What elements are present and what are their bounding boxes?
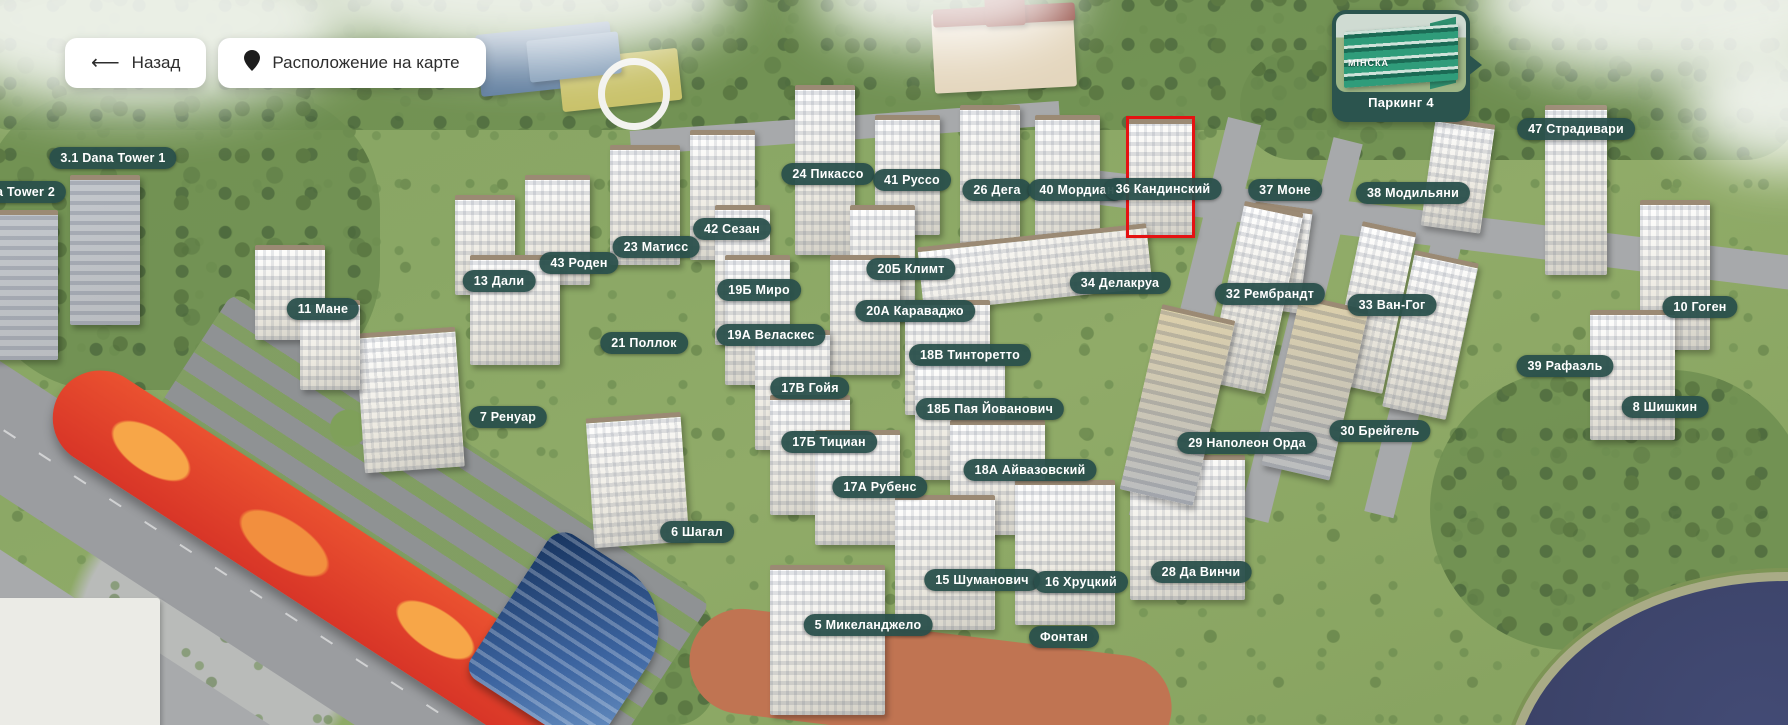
toolbar: ⟵ Назад Расположение на карте: [65, 38, 486, 88]
building-label[interactable]: 36 Кандинский: [1105, 178, 1222, 200]
building-label[interactable]: 24 Пикассо: [781, 163, 874, 185]
building-label[interactable]: ana Tower 2: [0, 181, 66, 203]
building-label[interactable]: 13 Дали: [463, 270, 536, 292]
parking-image-text: МІНСКА: [1348, 58, 1389, 68]
back-button-label: Назад: [132, 53, 181, 73]
building-label[interactable]: 20А Караваджо: [855, 300, 975, 322]
building-label[interactable]: 17А Рубенс: [832, 476, 927, 498]
arrow-left-icon: ⟵: [91, 53, 120, 73]
parking-card-caption: Паркинг 4: [1336, 95, 1466, 110]
building-block: [0, 210, 58, 360]
building-label[interactable]: 28 Да Винчи: [1151, 561, 1252, 583]
building-label[interactable]: 43 Роден: [539, 252, 618, 274]
map-pin-icon: [244, 50, 260, 76]
building-label[interactable]: 26 Дега: [962, 179, 1031, 201]
blk-shape: [984, 0, 1026, 27]
building-block: [960, 105, 1020, 245]
building-label[interactable]: 41 Руссо: [873, 169, 951, 191]
map-location-button[interactable]: Расположение на карте: [218, 38, 485, 88]
parking-card[interactable]: МІНСКА Паркинг 4: [1332, 10, 1470, 122]
map-location-button-label: Расположение на карте: [272, 53, 459, 73]
building-label[interactable]: 47 Страдивари: [1517, 118, 1635, 140]
building-label[interactable]: 34 Делакруа: [1070, 272, 1171, 294]
building-label[interactable]: 39 Рафаэль: [1516, 355, 1613, 377]
ring-shape: [598, 58, 670, 130]
masterplan-map: 3.1 Dana Tower 1ana Tower 224 Пикассо41 …: [0, 0, 1788, 725]
building-label[interactable]: 10 Гоген: [1662, 296, 1737, 318]
building-block: [355, 327, 465, 474]
building-label[interactable]: 8 Шишкин: [1622, 396, 1709, 418]
building-block: [1015, 480, 1115, 625]
building-label[interactable]: 7 Ренуар: [469, 406, 547, 428]
building-block: [770, 565, 885, 715]
forest-shape: [1240, 50, 1788, 160]
blk-shape: [0, 598, 160, 725]
building-label[interactable]: 18Б Пая Йованович: [916, 398, 1064, 420]
building-label[interactable]: 42 Сезан: [693, 218, 771, 240]
highlighted-building-box: [1126, 116, 1195, 238]
building-label[interactable]: 20Б Климт: [866, 258, 955, 280]
building-label[interactable]: 16 Хруцкий: [1034, 571, 1128, 593]
building-label[interactable]: 19Б Миро: [717, 279, 801, 301]
building-label[interactable]: 23 Матисс: [613, 236, 700, 258]
building-label[interactable]: 38 Модильяни: [1356, 182, 1470, 204]
building-label[interactable]: 33 Ван-Гог: [1348, 294, 1437, 316]
building-label[interactable]: 37 Моне: [1248, 179, 1322, 201]
building-label[interactable]: Фонтан: [1029, 626, 1099, 648]
building-label[interactable]: 17В Гойя: [770, 377, 849, 399]
building-block: [895, 495, 995, 630]
building-label[interactable]: 17Б Тициан: [781, 431, 877, 453]
back-button[interactable]: ⟵ Назад: [65, 38, 206, 88]
building-label[interactable]: 15 Шуманович: [924, 569, 1040, 591]
building-label[interactable]: 32 Рембрандт: [1215, 283, 1325, 305]
building-label[interactable]: 18А Айвазовский: [964, 459, 1097, 481]
building-label[interactable]: 19А Веласкес: [716, 324, 825, 346]
building-label[interactable]: 6 Шагал: [660, 521, 734, 543]
building-label[interactable]: 11 Мане: [287, 298, 359, 320]
parking-thumbnail: МІНСКА: [1336, 14, 1466, 92]
building-label[interactable]: 29 Наполеон Орда: [1177, 432, 1317, 454]
building-label[interactable]: 30 Брейгель: [1329, 420, 1430, 442]
parking-card-pointer-icon: [1468, 54, 1482, 76]
building-label[interactable]: 18В Тинторетто: [909, 344, 1031, 366]
building-block: [70, 175, 140, 325]
building-label[interactable]: 21 Поллок: [600, 332, 688, 354]
building-label[interactable]: 3.1 Dana Tower 1: [49, 147, 176, 169]
building-label[interactable]: 5 Микеланджело: [804, 614, 933, 636]
